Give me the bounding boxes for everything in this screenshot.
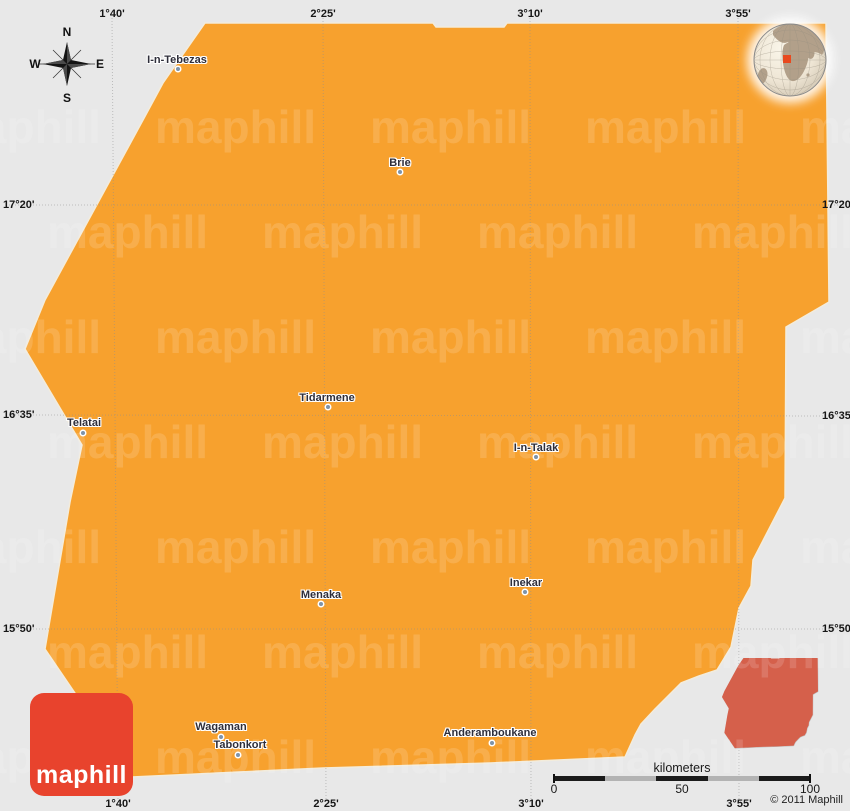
town-label: I-n-Tebezas (147, 54, 207, 66)
compass-n-label: N (63, 25, 72, 39)
locator-globe-icon (735, 5, 845, 115)
scale-bar-title: kilometers (552, 761, 812, 775)
town-label: Inekar (510, 577, 542, 589)
copyright-text: © 2011 Maphill (770, 794, 843, 806)
grid-label-bottom: 3°55' (726, 798, 751, 810)
town-label: Brie (389, 157, 410, 169)
town-label: Tabonkort (214, 739, 267, 751)
town-marker (398, 170, 402, 174)
grid-label-right: 17°20' (822, 199, 850, 211)
town-label: Tidarmene (299, 392, 354, 404)
town-marker (534, 455, 538, 459)
grid-label-right: 16°35' (822, 410, 850, 422)
town-marker (176, 67, 180, 71)
inset-region-polygon (722, 658, 818, 748)
grid-label-left: 16°35' (3, 409, 35, 421)
town-label: Menaka (301, 589, 341, 601)
town-marker (81, 431, 85, 435)
map-svg (0, 0, 850, 811)
grid-label-bottom: 3°10' (518, 798, 543, 810)
scale-bar-segment (759, 776, 810, 781)
scale-bar-segments (554, 776, 810, 781)
grid-label-bottom: 2°25' (313, 798, 338, 810)
scale-bar-segment (656, 776, 707, 781)
grid-label-top: 3°10' (517, 8, 542, 20)
town-marker (326, 405, 330, 409)
region-polygon[interactable] (25, 23, 829, 777)
globe-location-marker (783, 55, 791, 63)
town-marker (319, 602, 323, 606)
scale-bar-segment (605, 776, 656, 781)
maphill-logo-text: maphill (36, 761, 127, 790)
town-label: Wagaman (195, 721, 247, 733)
town-marker (490, 741, 494, 745)
town-marker (523, 590, 527, 594)
compass-e-label: E (96, 57, 104, 71)
town-marker (236, 753, 240, 757)
town-label: I-n-Talak (514, 442, 558, 454)
grid-label-left: 15°50' (3, 623, 35, 635)
grid-label-left: 17°20' (3, 199, 35, 211)
scale-bar-tick-label: 50 (675, 782, 688, 796)
grid-label-top: 1°40' (99, 8, 124, 20)
grid-label-bottom: 1°40' (105, 798, 130, 810)
scale-bar: kilometers 050100 (552, 761, 812, 797)
compass-s-label: S (63, 91, 71, 105)
map-canvas: maphillmaphillmaphillmaphillmaphillmaphi… (0, 0, 850, 811)
scale-bar-segment (554, 776, 605, 781)
compass-w-label: W (29, 57, 41, 71)
compass-rose-icon: N S W E (27, 20, 107, 108)
maphill-logo[interactable]: maphill (30, 693, 133, 796)
town-label: Telatai (67, 417, 101, 429)
grid-label-top: 2°25' (310, 8, 335, 20)
scale-bar-segment (708, 776, 759, 781)
scale-bar-tick-label: 0 (551, 782, 558, 796)
grid-label-right: 15°50' (822, 623, 850, 635)
town-label: Anderamboukane (444, 727, 537, 739)
